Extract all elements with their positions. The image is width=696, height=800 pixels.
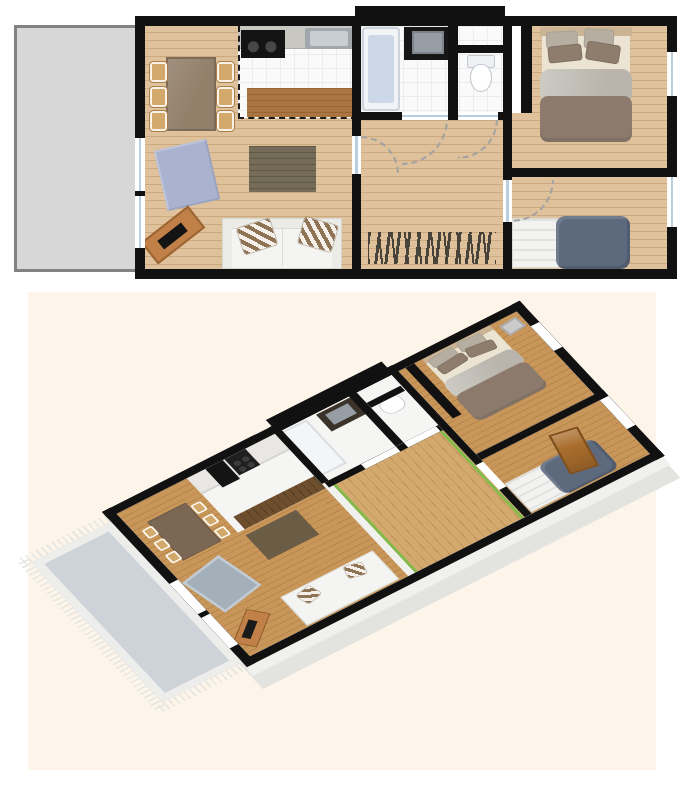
floor-plan-page [0,0,696,800]
toilet-bowl [470,64,492,92]
dining-chair [216,86,235,108]
single-bed-duvet [556,216,630,269]
dining-chair [216,61,235,83]
window [667,52,677,96]
wall-bedroom-vestibule [521,26,532,113]
door-living-hall [352,136,361,174]
sofa-arm [223,219,232,268]
window [667,177,677,227]
bathroom-door [402,112,448,120]
bedroom-door-panel [512,26,521,113]
wall-top [135,16,677,26]
wall-hall-bedroom2 [503,222,512,279]
dining-table [166,57,216,131]
sliding-door-window [135,196,145,248]
toilet [465,55,495,95]
wc-door [458,112,498,120]
floor-plan-3d [0,290,696,800]
dining-chair [149,61,168,83]
vanity-sink [404,27,452,60]
wall-hall-bedrooms [503,16,512,180]
duvet [540,96,632,142]
kitchen-open-boundary [238,26,357,119]
floor-plan-2d [0,0,696,290]
wall-bath-wc [448,16,458,119]
pillow [547,43,583,63]
dark-rug [249,146,316,192]
bathtub [362,27,400,111]
wall-bottom [135,269,677,279]
wall-between-bedrooms [512,168,677,177]
bedroom-door [503,180,512,222]
terrace-2d [14,25,143,272]
sofa-seam [282,229,283,266]
striped-runner-rug [368,232,496,264]
sliding-door-window [135,138,145,191]
wall-living-hall [352,174,361,270]
wall-wc-top [458,45,503,53]
dining-chair [216,110,235,132]
dining-chair [149,110,168,132]
dining-chair [149,86,168,108]
